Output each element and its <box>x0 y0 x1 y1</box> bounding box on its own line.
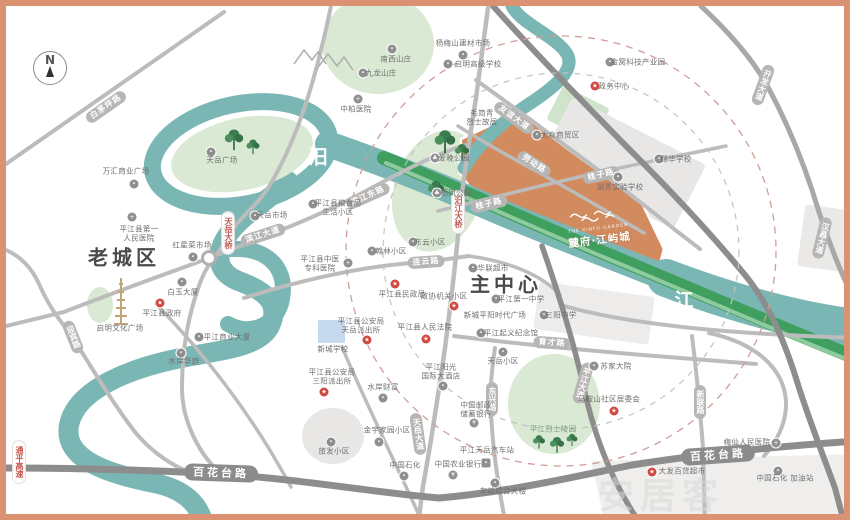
poi-label: 金宇家园小区 <box>364 427 411 436</box>
govt-icon: ★ <box>391 280 400 289</box>
poi-label: 平江天岳汽车站 <box>460 447 515 456</box>
bank-icon: ¥ <box>449 471 458 480</box>
poi-label: 中国农业银行 <box>435 461 482 470</box>
road-label: 新联路 <box>694 385 706 419</box>
place-icon: • <box>327 438 336 447</box>
poi-label: 平江县第一 人民医院 <box>120 225 159 242</box>
gas-icon: • <box>400 472 409 481</box>
map-container[interactable]: THE XINFU GARDEN 麓府·江屿城 N 安居客 +中柏医院•杨梅山建… <box>0 0 850 520</box>
poi-label: 平江县民政局 <box>379 291 426 300</box>
poi-label: 东云小区 <box>414 239 445 248</box>
district-label: 老城区 <box>88 242 160 271</box>
poi-label: 天岳广场 <box>206 157 237 166</box>
place-icon: • <box>499 348 508 357</box>
poi-label: 爱晚公园 <box>438 155 469 164</box>
poi-label: 平江商业大厦 <box>204 334 251 343</box>
govt-icon: ★ <box>320 388 329 397</box>
poi-label: 金窝科技产业园 <box>611 59 666 68</box>
road-label: 育才路 <box>533 336 571 351</box>
poi-label: 大发百货超市 <box>659 468 706 477</box>
poi-label: 平江第一中学 <box>498 296 545 305</box>
north-arrow-icon <box>46 66 54 77</box>
poi-label: 水岸财富 <box>367 384 398 393</box>
road-label: 百花台路 <box>184 463 259 483</box>
poi-label: 水岸华庭 <box>168 358 199 367</box>
poi-label: 启明高级学校 <box>455 61 502 70</box>
govt-icon: ★ <box>648 468 657 477</box>
pagoda-sketch <box>114 278 128 324</box>
hospital-icon: + <box>354 95 363 104</box>
poi-label: 华联超市 <box>477 265 508 274</box>
poi-label: 中国石化 <box>389 462 420 471</box>
place-icon: • <box>375 438 384 447</box>
place-icon: • <box>195 333 204 342</box>
poi-label: 九龙山庄 <box>365 70 396 79</box>
poi-label: 平江县粮食局 生活小区 <box>315 199 362 216</box>
school-icon: • <box>614 173 623 182</box>
poi-label: 天岳小区 <box>487 358 518 367</box>
poi-label: 毛简青 烈士故居 <box>466 109 497 126</box>
poi-label: 天岳市场 <box>256 212 287 221</box>
place-icon: • <box>130 180 139 189</box>
road-label: 天岳大桥 <box>222 212 234 254</box>
govt-icon: ★ <box>363 336 372 345</box>
poi-label: 平江起义纪念馆 <box>484 330 539 339</box>
poi-label: 万汇商业广场 <box>103 168 150 177</box>
poi-label: 栖凤公园 <box>440 190 471 199</box>
poi-label: 平江县公安局 三阳派出所 <box>309 368 356 385</box>
poi-label: 平江县政府 <box>143 310 182 319</box>
poi-label: 车站综合大楼 <box>480 488 527 497</box>
poi-label: 苏家大院 <box>600 363 631 372</box>
compass: N <box>33 51 67 91</box>
school-icon: • <box>444 60 453 69</box>
poi-label: 中国邮政 储蓄银行 <box>460 401 491 418</box>
river-name-char: 江 <box>674 286 693 313</box>
govt-icon: ★ <box>450 302 459 311</box>
road-label: 通平高速 <box>13 441 25 483</box>
poi-label: 平江县公安局 天岳派出所 <box>338 317 385 334</box>
market-icon: • <box>469 264 478 273</box>
wave-logo-icon <box>567 206 626 225</box>
poi-label: 三阳中学 <box>545 312 576 321</box>
place-icon: • <box>379 394 388 403</box>
poi-label: 梅仙人民医院 <box>724 439 771 448</box>
roundabout <box>203 252 216 265</box>
poi-label: 白玉大厦 <box>167 289 198 298</box>
poi-label: 新城学校 <box>317 346 348 355</box>
poi-label: 大众商贸区 <box>541 132 580 141</box>
hospital-icon: + <box>772 439 781 448</box>
govt-icon: ★ <box>610 407 619 416</box>
place-icon: • <box>178 278 187 287</box>
hospital-icon: + <box>128 213 137 222</box>
poi-label: 政务中心 <box>598 83 629 92</box>
poi-label: 平江县人民法院 <box>398 324 453 333</box>
poi-label: 郧华学校 <box>660 156 691 165</box>
poi-label: 湖青实验学校 <box>597 184 644 193</box>
road-label: 连云路 <box>407 255 445 270</box>
poi-label: 南西山庄 <box>380 56 411 65</box>
govt-icon: ★ <box>156 299 165 308</box>
poi-label: 启明文化广场 <box>97 325 144 334</box>
poi-label: 新城平阳时代广场 <box>464 312 526 321</box>
river-name-char: 汨 <box>308 143 327 170</box>
poi-label: 中柏医院 <box>340 106 371 115</box>
compass-ring-icon: N <box>33 51 67 85</box>
place-icon: • <box>439 382 448 391</box>
market-icon: • <box>459 51 468 60</box>
poi-label: 杨梅山建材市场 <box>436 40 491 49</box>
govt-icon: ★ <box>422 335 431 344</box>
place-icon: • <box>388 45 397 54</box>
hospital-icon: + <box>344 259 353 268</box>
poi-label: 马鞍山社区居委会 <box>578 396 640 405</box>
bank-icon: ¥ <box>470 419 479 428</box>
poi-label: 政协机关小区 <box>421 293 468 302</box>
poi-label: 中国石化 加油站 <box>756 475 813 484</box>
market-icon: • <box>189 253 198 262</box>
poi-label: 旅发小区 <box>318 448 349 457</box>
poi-label: 平江县中医 专科医院 <box>301 255 340 272</box>
bus-icon: • <box>482 459 491 468</box>
poi-label: 平江阳光 国际大酒店 <box>422 363 461 380</box>
poi-label: 翰林小区 <box>375 248 406 257</box>
poi-label: 红星菜市场 <box>173 242 212 251</box>
poi-label: 平江烈士陵园 <box>530 426 577 435</box>
place-icon: • <box>590 362 599 371</box>
